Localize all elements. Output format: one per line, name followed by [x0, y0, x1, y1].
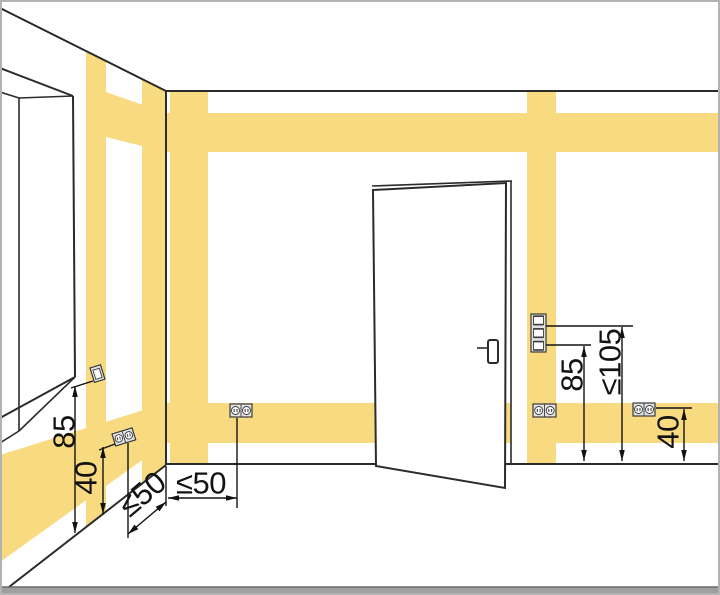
socket-contact — [648, 408, 649, 411]
socket-face-right — [646, 406, 654, 414]
arrowhead-right — [226, 495, 237, 501]
window-sill-outer — [0, 377, 75, 418]
dimension-label: ≤50 — [176, 466, 226, 501]
socket-contact — [639, 408, 640, 411]
arrowhead-up — [581, 346, 587, 357]
door-switch-stack — [531, 314, 546, 352]
arrowhead-down — [619, 450, 625, 461]
back-wall — [166, 91, 719, 488]
arrowhead-down — [72, 522, 78, 533]
socket-contact — [245, 409, 246, 412]
window-sill-inner — [0, 431, 19, 443]
socket-contact — [650, 408, 651, 411]
dimension-label: 40 — [69, 461, 104, 495]
arrowhead-down — [581, 450, 587, 461]
socket-contact — [247, 409, 248, 412]
socket-face-left — [232, 407, 240, 415]
switch-rocker — [534, 316, 544, 325]
door-handle-plate — [488, 340, 498, 363]
bottom-gray-strip — [1, 587, 719, 594]
window-reveal-top — [0, 92, 19, 98]
socket-contact — [548, 409, 549, 412]
switch-rocker-edge — [534, 341, 544, 343]
switch-rocker-edge — [534, 315, 544, 317]
zone-back-ceiling-horizontal — [166, 113, 719, 152]
socket-face-right — [243, 407, 251, 415]
dimension-label: 85 — [47, 415, 82, 448]
window-opening-top — [0, 68, 73, 96]
socket-contact — [551, 409, 552, 412]
window-opening-right — [73, 96, 75, 377]
switch-rocker-edge — [534, 349, 544, 351]
image-frame — [1, 1, 719, 594]
switch-rocker-edge — [534, 324, 544, 326]
socket-contact — [637, 408, 638, 411]
switch-rocker-edge — [534, 328, 544, 330]
switch-rocker-edge — [534, 337, 544, 339]
dimension-label: ≤105 — [593, 329, 628, 396]
door-leaf — [373, 183, 506, 488]
socket-face-right — [546, 407, 554, 415]
arrowhead-down — [681, 450, 687, 461]
switch-rocker — [534, 329, 544, 338]
installation-zones-diagram: 85 40 ≤50 ≤50 — [0, 0, 720, 595]
zone-back-corner-vertical — [170, 91, 208, 464]
socket-contact — [540, 409, 541, 412]
socket-contact — [537, 409, 538, 412]
right-socket-outlet — [633, 403, 655, 416]
diagram-canvas: 85 40 ≤50 ≤50 — [0, 0, 720, 595]
socket-face-left — [535, 407, 543, 415]
window-reveal-top-edge — [19, 96, 73, 98]
switch-rocker — [534, 341, 544, 350]
socket-contact — [236, 409, 237, 412]
dimension-label: 40 — [651, 415, 686, 449]
door — [372, 181, 512, 488]
dimension-label: 85 — [555, 358, 590, 391]
socket-contact — [234, 409, 235, 412]
corner-socket-outlet — [230, 404, 252, 417]
door-zone-socket-outlet — [533, 404, 556, 417]
window — [0, 68, 75, 443]
socket-face-left — [635, 406, 643, 414]
outer-border — [1, 1, 719, 594]
